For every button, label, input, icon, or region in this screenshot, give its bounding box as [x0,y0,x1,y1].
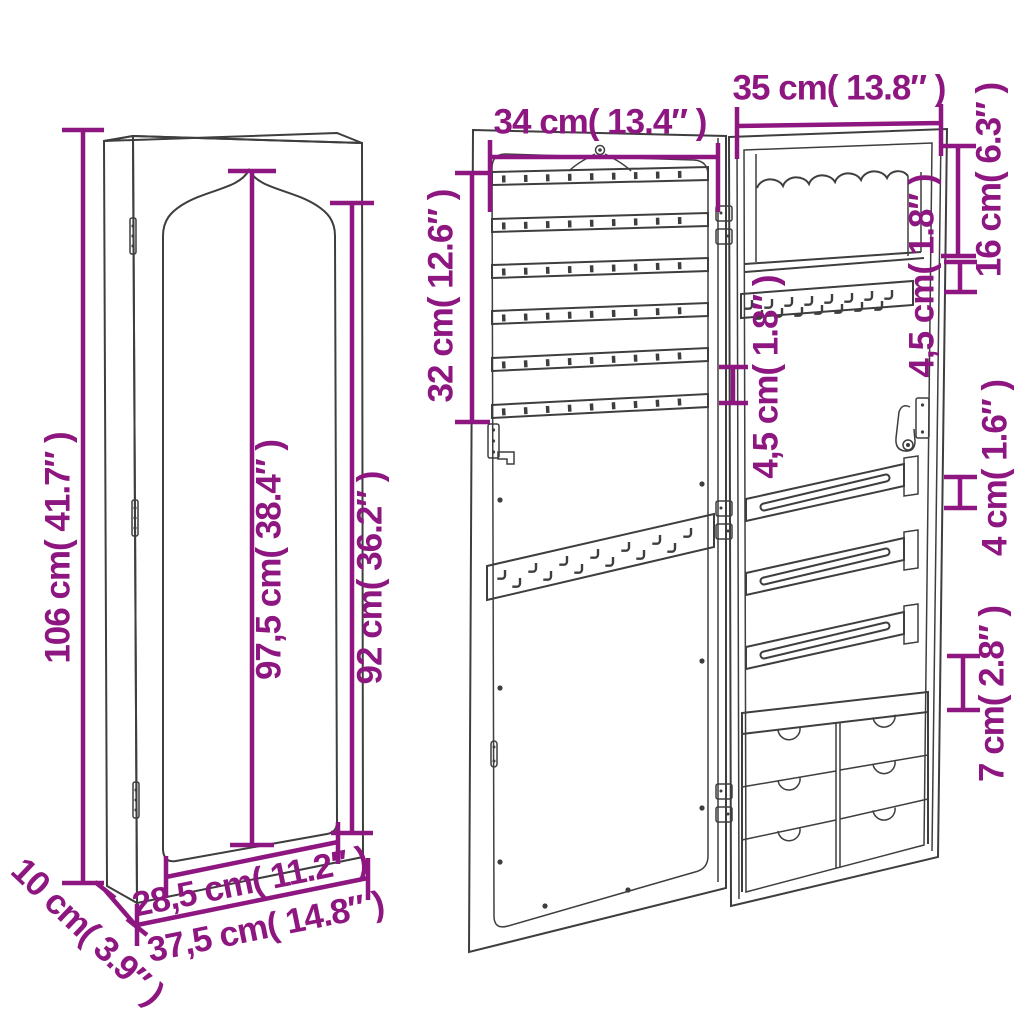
dimension-diagram: 106 cm( 41.7″ ) 97,5 cm( 38.4″ ) 92 cm( … [0,0,1024,1024]
dim-rack-height-label: 32 cm( 12.6″ ) [421,190,460,403]
dim-line-inner-hook-gap [719,367,748,403]
jewelry-cabinet-dimension-drawing: 106 cm( 41.7″ ) 97,5 cm( 38.4″ ) 92 cm( … [0,0,1024,1024]
dim-cabinet-width-label: 35 cm( 13.8″ ) [733,68,946,107]
dim-door-width-label: 34 cm( 13.4″ ) [494,102,707,141]
dim-top-shelf-gap-label: 4,5 cm( 1.8″ ) [902,174,941,377]
cabinet-latch [896,398,929,451]
dim-rod-height-label: 4 cm( 1.6″ ) [975,380,1014,556]
dim-line-cabinet-width [737,104,941,159]
door-hook-bar [487,514,714,600]
earring-rails [492,167,708,418]
closed-dimension-lines [62,130,374,946]
dim-line-rack-height [455,173,490,422]
closed-cabinet-drawing [104,133,363,903]
dim-drawer-gap-label: 7 cm( 2.8″ ) [972,606,1011,782]
slotted-rod-shelves [746,456,918,669]
dim-mirror-peak-height-label: 97,5 cm( 38.4″ ) [249,440,288,680]
door-screws [491,481,705,908]
dim-inner-hook-gap-label: 4,5 cm( 1.8″ ) [746,275,785,478]
drawer-unit [742,692,928,892]
cabinet-left-edge-line [737,140,739,899]
ring-compartment [745,154,924,272]
dim-mirror-side-height-label: 92 cm( 36.2″ ) [350,472,389,685]
dim-line-rod-height [944,477,977,508]
open-door-drawing [469,130,732,952]
scalloped-edge [757,171,908,188]
drawer-top-rim [742,692,928,734]
cabinet-front-face [133,136,363,903]
drawer-row-lines [742,755,928,840]
dim-top-section-height-label: 16 cm( 6.3″ ) [969,83,1008,277]
door-lock [488,424,514,464]
dim-total-height-label: 106 cm( 41.7″ ) [38,432,77,663]
